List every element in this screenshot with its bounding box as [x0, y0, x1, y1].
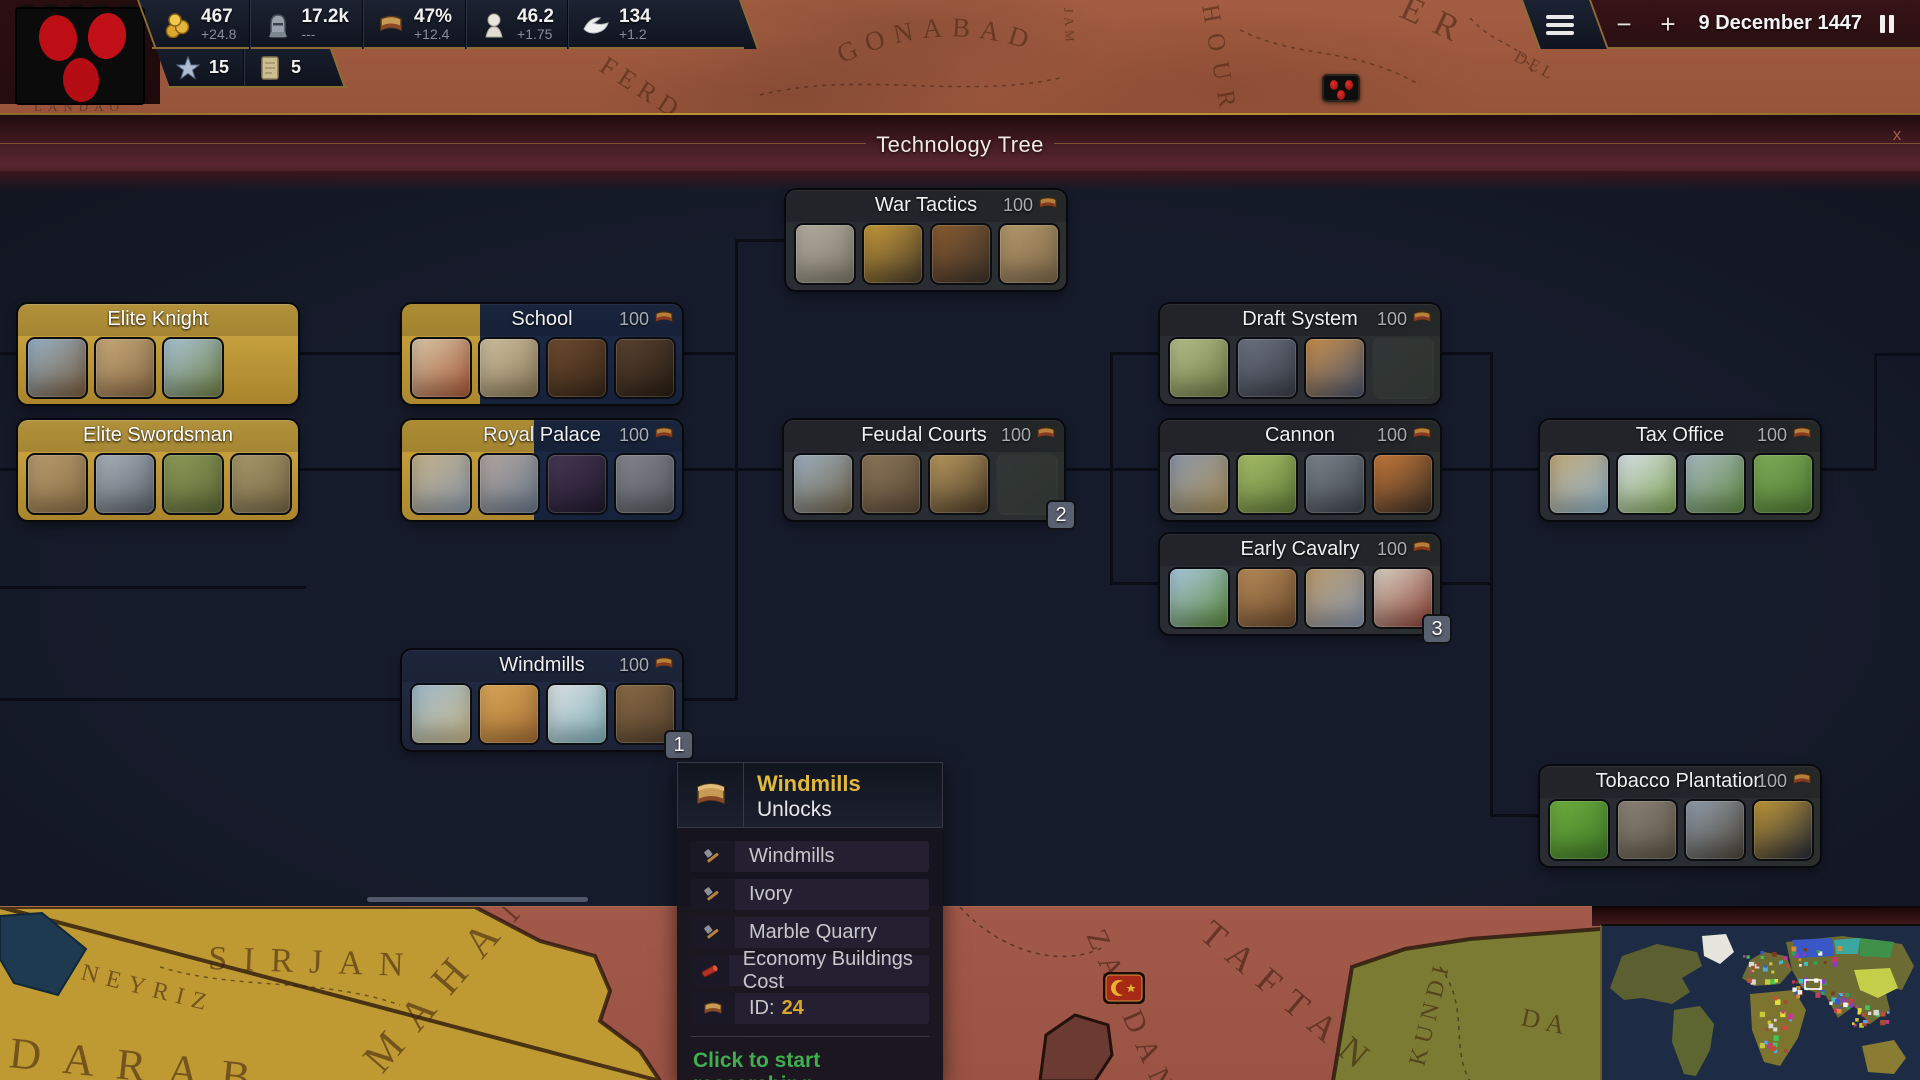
tree-connection-line [1490, 814, 1542, 817]
thumb-school-courtyard [410, 337, 472, 399]
resource-value: 46.2 [517, 7, 554, 27]
minimap-country [1885, 1020, 1889, 1024]
tree-connection-line [0, 352, 20, 355]
tech-node-royal-palace[interactable]: Royal Palace100 [402, 420, 682, 520]
minimap-country [1769, 962, 1772, 965]
minimap-country [1796, 981, 1799, 984]
player-flag[interactable] [14, 4, 146, 111]
minimap-country [1749, 970, 1752, 973]
tree-connection-line [735, 239, 788, 242]
thumb-battlefield-dawn [1304, 337, 1366, 399]
thumb-court-castle [792, 453, 854, 515]
minimap-country [1881, 1012, 1885, 1016]
minimap-country [1802, 953, 1805, 956]
russia-mid [1834, 938, 1860, 954]
minimap-country [1775, 979, 1779, 983]
thumb-timber-inn [1236, 567, 1298, 629]
scroll-icon [691, 993, 735, 1024]
minimap-country [1774, 1036, 1779, 1041]
thumb-hedge-fields [1752, 453, 1814, 515]
minimap-country [1852, 1022, 1855, 1025]
thumb-night-hall [546, 453, 608, 515]
tech-node-school[interactable]: School100 [402, 304, 682, 404]
minimap-country [1799, 958, 1802, 961]
tech-node-windmills[interactable]: Windmills1001 [402, 650, 682, 750]
tech-tooltip: Windmills Unlocks Windmills Ivory Marble… [677, 762, 943, 1080]
tree-connection-line [300, 468, 404, 471]
thumb-mansion [478, 453, 540, 515]
tree-connection-line [735, 239, 738, 700]
minimap-country [1792, 980, 1795, 983]
tooltip-header: Windmills Unlocks [677, 762, 943, 828]
hammer-icon [691, 841, 735, 872]
cost-scroll-icon [1038, 195, 1058, 216]
minimap-country [1804, 962, 1808, 966]
tech-cost: 100 [619, 425, 649, 446]
ottoman-flag-marker[interactable] [1103, 972, 1145, 1004]
tech-node-cannon[interactable]: Cannon100 [1160, 420, 1440, 520]
map-label-sirjan: SIRJAN [208, 940, 420, 984]
hammer-icon [691, 917, 735, 948]
minimap-country [1798, 990, 1802, 994]
minimap-country [1880, 1020, 1885, 1025]
tech-node-early-cavalry[interactable]: Early Cavalry1003 [1160, 534, 1440, 634]
resource-value: 47% [414, 7, 452, 27]
minimap-top-strip [1592, 906, 1920, 926]
resource-value: 134 [619, 7, 651, 27]
horizontal-scrollbar-thumb[interactable] [367, 897, 588, 902]
tree-connection-line [1110, 582, 1162, 585]
tech-cost: 100 [1757, 425, 1787, 446]
minimap-country [1761, 956, 1764, 959]
minimap-country [1799, 979, 1804, 984]
minimap-country [1784, 956, 1788, 960]
tech-cost: 100 [1377, 539, 1407, 560]
tech-node-draft-system[interactable]: Draft System100 [1160, 304, 1440, 404]
thumb-windmill-plain [410, 683, 472, 745]
thumb-whip [930, 223, 992, 285]
minimap-country [1838, 946, 1843, 951]
minimap-country [1743, 955, 1746, 958]
cost-scroll-icon [654, 309, 674, 330]
thumb-siege-works [998, 223, 1060, 285]
thumb-vineyard-hills [1168, 567, 1230, 629]
thumb-harbor-town [1168, 453, 1230, 515]
thumb-dusk-plantation [1684, 799, 1746, 861]
tech-node-feudal-courts[interactable]: Feudal Courts1002 [784, 420, 1064, 520]
secondary-bar: 155 [162, 49, 315, 86]
thumb-farm-fields [1236, 453, 1298, 515]
modifier-row: Economy Buildings Cost [691, 955, 929, 986]
minimap-country [1765, 1028, 1768, 1031]
tooltip-subtitle: Unlocks [757, 798, 861, 822]
thumb-burning-fortress [1372, 453, 1434, 515]
map-label-gonabad: GONABAD [832, 12, 1041, 69]
minimap-country [1764, 1041, 1768, 1045]
resource-value: 17.2k [301, 7, 349, 27]
minimap-country [1774, 1019, 1777, 1022]
minimap-country [1760, 1012, 1765, 1017]
modifier-icon [691, 955, 729, 986]
thumb-ruined-hall [478, 337, 540, 399]
cost-scroll-icon [1412, 309, 1432, 330]
minimap-world [1602, 926, 1918, 1078]
map-label-jam: JAM [1061, 7, 1078, 46]
minimap-country [1843, 1003, 1848, 1008]
thumb-castle-town [26, 337, 88, 399]
tree-connection-line [735, 468, 786, 471]
minimap-country [1837, 1009, 1842, 1014]
pause-icon[interactable] [1880, 15, 1894, 33]
minimap-country [1773, 1027, 1777, 1031]
documents-counter[interactable]: 5 [243, 49, 315, 86]
overlay-header: Technology Tree [0, 115, 1920, 171]
thumb-tea-hills [1684, 453, 1746, 515]
minimap-country [1824, 961, 1827, 964]
map-label-er: ER [1395, 0, 1479, 55]
cost-scroll-icon [1036, 425, 1056, 446]
thumb-palace [410, 453, 472, 515]
tech-cost: 100 [619, 309, 649, 330]
thumb-musketeer-line [1168, 337, 1230, 399]
tree-connection-line [0, 698, 404, 701]
resource-delta: +24.8 [201, 27, 236, 42]
tech-title: Elite Swordsman [18, 424, 298, 447]
minimap-country [1831, 992, 1835, 996]
minimap-country [1840, 993, 1843, 996]
tech-order-badge: 2 [1046, 500, 1076, 530]
id-row: ID: 24 [691, 993, 929, 1024]
coins-icon [163, 12, 193, 38]
thumb-field-cannon [1304, 453, 1366, 515]
minimap-country [1769, 1024, 1774, 1029]
minimap-country [1770, 1046, 1775, 1051]
cost-scroll-icon [654, 655, 674, 676]
thumb-office-building [1548, 453, 1610, 515]
minimap-country [1832, 957, 1837, 962]
tree-connection-line [1874, 353, 1877, 470]
thumb-marching-army [230, 453, 292, 515]
thumb-fortress-wall [26, 453, 88, 515]
research-hint: Click to start researching [691, 1037, 929, 1080]
gold-resource[interactable]: 467+24.8 [150, 0, 249, 49]
thumb-cavalry-charge [1304, 567, 1366, 629]
tooltip-title: Windmills [757, 771, 861, 797]
minimap-country [1788, 1014, 1794, 1020]
speed-down-button[interactable]: − [1608, 8, 1640, 40]
scroll-icon [376, 14, 406, 36]
unlock-row: Windmills [691, 841, 929, 872]
tree-connection-line [1438, 352, 1492, 355]
tech-cost: 100 [1003, 195, 1033, 216]
minimap-country [1779, 961, 1782, 964]
tree-connection-line [1110, 352, 1113, 584]
tech-title: Elite Knight [18, 308, 298, 331]
thumb-marble-quarry [546, 683, 608, 745]
unlock-row: Marble Quarry [691, 917, 929, 948]
tree-connection-line [1822, 468, 1876, 471]
minimap-country [1782, 1011, 1785, 1014]
tech-order-badge: 3 [1422, 614, 1452, 644]
minimap-country [1855, 1005, 1858, 1008]
thumb-castle-gathering [1616, 799, 1678, 861]
minimap-country [1784, 1000, 1788, 1004]
resource-value: 467 [201, 7, 236, 27]
minimap-country [1864, 1020, 1867, 1023]
soldier-icon [263, 12, 293, 38]
tree-connection-line [300, 352, 404, 355]
minimap-country [1784, 1049, 1788, 1053]
minimap-country [1799, 964, 1802, 967]
minimap-country [1833, 962, 1838, 967]
minimap-country [1821, 992, 1824, 995]
minimap-country [1747, 955, 1750, 958]
unlock-row: Ivory [691, 879, 929, 910]
thumb-trumpet [862, 223, 924, 285]
thumb-knight-white-horse [94, 337, 156, 399]
tech-node-tobacco-plantation[interactable]: Tobacco Plantation100 [1540, 766, 1820, 866]
counter-value: 5 [291, 57, 301, 78]
minimap-country [1849, 999, 1854, 1004]
tree-connection-line [1438, 582, 1492, 585]
minimap-country [1772, 952, 1777, 957]
minimap-country [1747, 978, 1752, 983]
prestige-resource[interactable]: 46.2+1.75 [465, 0, 567, 49]
minimap-country [1849, 1004, 1853, 1008]
minimap-country [1796, 995, 1800, 999]
star-icon [176, 56, 200, 80]
minimap-country [1867, 1006, 1870, 1009]
minimap-country [1757, 963, 1760, 966]
minimap-country [1862, 1013, 1866, 1017]
tree-connection-line [680, 352, 737, 355]
minimap-country [1765, 979, 1770, 984]
thumb-ivory-elephant [478, 683, 540, 745]
minimap-country [1858, 1011, 1861, 1014]
minimap-country [1792, 988, 1796, 992]
tech-cost: 100 [1377, 425, 1407, 446]
minimap-country [1855, 1018, 1859, 1022]
minimap-country [1764, 965, 1767, 968]
minimap-country [1792, 952, 1796, 956]
thumb-tobacco-field [1548, 799, 1610, 861]
tech-node-tax-office[interactable]: Tax Office100 [1540, 420, 1820, 520]
tech-node-elite-swordsman[interactable]: Elite Swordsman [18, 420, 298, 520]
cost-scroll-icon [1412, 425, 1432, 446]
map-label-hour: HOUR [1196, 2, 1243, 114]
player-country-map-marker[interactable] [1322, 74, 1360, 102]
minimap-country [1813, 961, 1817, 965]
minimap-country [1815, 993, 1820, 998]
page-title: Technology Tree [0, 132, 1920, 158]
thumb-gold-tribute [928, 453, 990, 515]
speed-up-button[interactable]: + [1652, 8, 1684, 40]
doves-resource[interactable]: 134+1.2 [567, 0, 664, 49]
tree-connection-line [0, 586, 306, 589]
tree-connection-line [680, 468, 737, 471]
map-label-ferd: FERD [595, 51, 690, 114]
minimap-country [1887, 1011, 1890, 1014]
minimap-country [1804, 948, 1807, 951]
tech-id-value: 24 [782, 997, 804, 1020]
close-button[interactable]: x [1884, 124, 1910, 146]
minimap-country [1768, 1021, 1771, 1024]
thumb-golden-eagle [1752, 799, 1814, 861]
minimap-country [1817, 950, 1820, 953]
hamburger-icon[interactable] [1546, 15, 1574, 35]
thumb-armored-knight [94, 453, 156, 515]
tech-cost: 100 [1377, 309, 1407, 330]
bust-icon [479, 12, 509, 38]
scroll-icon [678, 763, 744, 827]
thumb-book-stack [546, 337, 608, 399]
tech-node-elite-knight[interactable]: Elite Knight [18, 304, 298, 404]
game-date: 9 December 1447 [1699, 12, 1862, 35]
minimap-country [1868, 1012, 1871, 1015]
cost-scroll-icon [654, 425, 674, 446]
thumb-shield-soldiers [162, 453, 224, 515]
manpower-resource[interactable]: 17.2k--- [249, 0, 362, 49]
tree-connection-line [1110, 352, 1162, 355]
resource-delta: --- [301, 27, 349, 42]
thumb-scholars-table [614, 337, 676, 399]
tech-cost: 100 [619, 655, 649, 676]
tech-node-war-tactics[interactable]: War Tactics100 [786, 190, 1066, 290]
tree-connection-line [0, 468, 20, 471]
tree-connection-line [680, 698, 737, 701]
thumb-dark-courtyard [1236, 337, 1298, 399]
cost-scroll-icon [1412, 539, 1432, 560]
stars-counter[interactable]: 15 [162, 49, 243, 86]
tooltip-body: Windmills Ivory Marble Quarry Economy Bu… [677, 828, 943, 1080]
minimap-country [1835, 999, 1840, 1004]
minimap-country [1782, 1026, 1787, 1031]
thumb-manor-courtyard [860, 453, 922, 515]
thumb-green-valley [1616, 453, 1678, 515]
tech-order-badge: 1 [664, 730, 694, 760]
empty-slot [1372, 337, 1434, 399]
minimap-country [1841, 998, 1846, 1003]
minimap-country [1771, 971, 1774, 974]
minimap-country [1773, 996, 1777, 1000]
paper-icon [258, 56, 282, 80]
resource-bar: 467+24.817.2k---47%+12.446.2+1.75134+1.2 [150, 0, 664, 49]
minimap-country [1845, 993, 1849, 997]
cost-scroll-icon [1792, 771, 1812, 792]
cost-scroll-icon [1792, 425, 1812, 446]
counter-value: 15 [209, 57, 229, 78]
minimap[interactable] [1600, 924, 1920, 1080]
hammer-icon [691, 879, 735, 910]
thumb-knight-charge [162, 337, 224, 399]
resource-delta: +12.4 [414, 27, 452, 42]
tech-cost: 100 [1001, 425, 1031, 446]
minimap-country [1792, 947, 1797, 952]
resource-delta: +1.75 [517, 27, 554, 42]
thumb-command-building [794, 223, 856, 285]
minimap-country [1786, 965, 1789, 968]
minimap-country [1829, 1002, 1832, 1005]
resource-delta: +1.2 [619, 27, 651, 42]
dove-icon [581, 13, 611, 37]
minimap-country [1874, 1010, 1879, 1015]
map-label-del: DEL [1511, 47, 1560, 85]
thumb-sword [614, 453, 676, 515]
minimap-country [1761, 951, 1764, 954]
tech-cost: 100 [1757, 771, 1787, 792]
tree-connection-line [1490, 352, 1493, 816]
research-resource[interactable]: 47%+12.4 [362, 0, 465, 49]
dark-country[interactable] [1040, 1015, 1112, 1080]
tree-connection-line [1874, 353, 1920, 356]
